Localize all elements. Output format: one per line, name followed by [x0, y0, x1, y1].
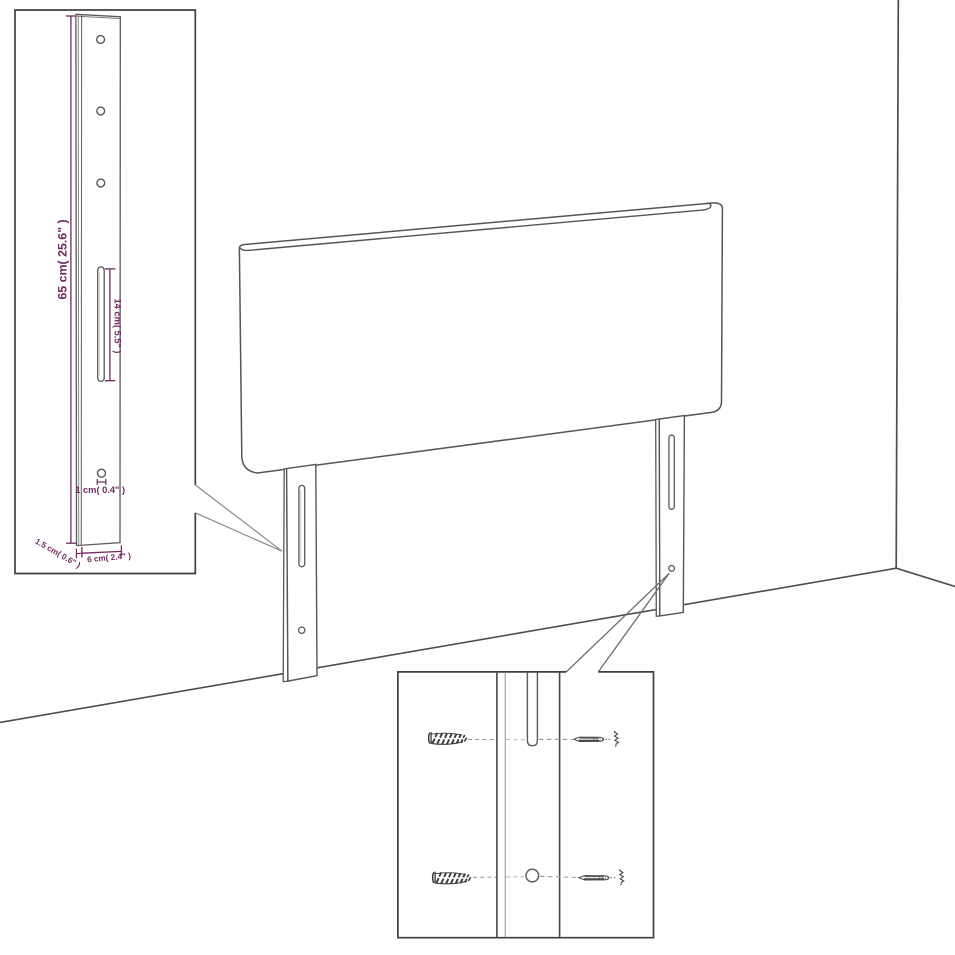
svg-text:65 cm( 25.6" ): 65 cm( 25.6" ): [55, 219, 69, 299]
svg-text:1 cm( 0.4" ): 1 cm( 0.4" ): [75, 485, 125, 495]
svg-text:1.5 cm( 0.6" ): 1.5 cm( 0.6" ): [34, 537, 83, 570]
svg-text:14 cm( 5.5" ): 14 cm( 5.5" ): [112, 298, 122, 353]
